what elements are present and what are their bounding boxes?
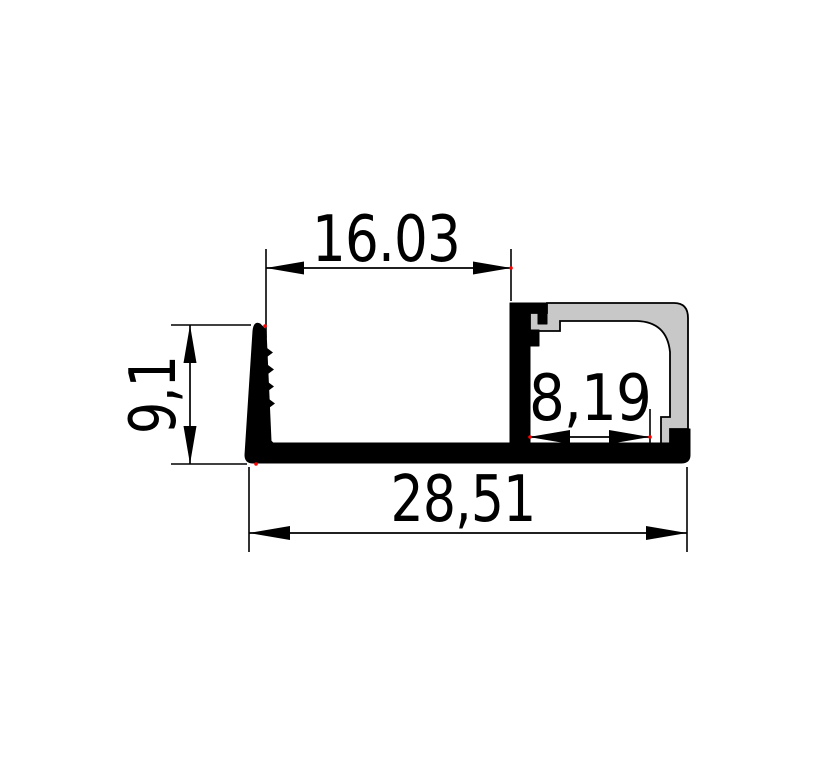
dimension-overall-width: 28,51 [249,463,687,552]
dimension-left-height: 9,1 [117,325,251,464]
arrowhead-right [473,262,511,275]
endpoint-dot [509,266,513,270]
arrowhead-left [266,262,304,275]
endpoint-dot [648,435,652,439]
dimension-top-width: 16.03 [266,203,511,338]
dimension-label-overall-width: 28,51 [391,463,536,537]
dimension-label-top-width: 16.03 [312,203,460,277]
arrowhead-left [249,526,290,540]
dimension-label-left-height: 9,1 [117,356,191,434]
profile-drawing-canvas: 16.03 9,1 8,19 28,51 [0,0,837,765]
technical-drawing-page: 16.03 9,1 8,19 28,51 [0,0,837,765]
arrowhead-right [646,526,687,540]
endpoint-dot [254,462,258,466]
dimension-label-inner-width: 8,19 [529,362,651,436]
endpoint-dot [528,435,532,439]
endpoint-dot [263,324,267,328]
dimension-inner-width: 8,19 [529,362,651,447]
